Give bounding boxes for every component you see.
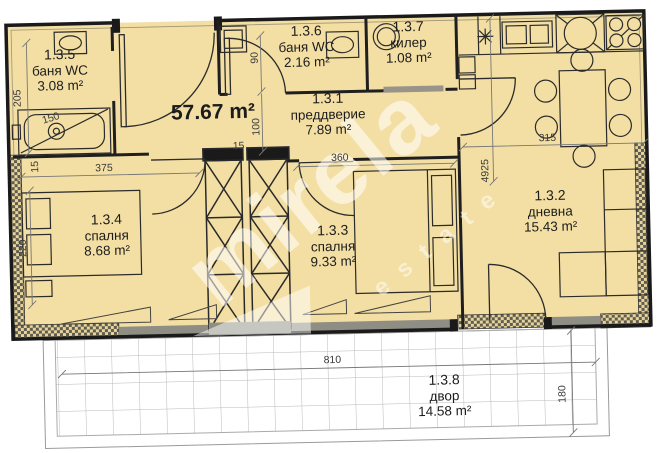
dim-bedroom4-width: 375 <box>95 162 113 174</box>
room-area: 9.33 m² <box>268 253 398 272</box>
dim-shaft-gap: 15 <box>233 140 245 152</box>
dim-left-small: 15 <box>29 161 41 173</box>
room-area: 7.89 m² <box>263 121 393 140</box>
room-area: 1.08 m² <box>344 49 474 68</box>
dim-living-height: 4925 <box>479 159 492 183</box>
dim-bedroom4-depth: 220 <box>17 239 29 257</box>
dim-bath5-height: 205 <box>11 89 23 107</box>
light-symbol-icon <box>477 28 493 44</box>
dim-yard-width: 810 <box>323 354 341 366</box>
room-label-hall131: 1.3.1 преддверие 7.89 m² <box>263 89 394 140</box>
floor-plan: mirela estate 57.67 m² 1.3.5 баня WC 3.0… <box>0 0 663 453</box>
dim-hall-depth: 100 <box>250 118 262 136</box>
dim-bath6-door: 90 <box>249 52 261 64</box>
room-label-closet137: 1.3.7 килер 1.08 m² <box>343 17 474 68</box>
room-area: 8.68 m² <box>42 242 172 261</box>
room-area: 15.43 m² <box>486 218 616 237</box>
room-label-yard138: 1.3.8 двор 14.58 m² <box>379 370 510 421</box>
room-label-living132: 1.3.2 дневна 15.43 m² <box>485 186 616 237</box>
room-area: 14.58 m² <box>380 402 510 421</box>
floor-plan-page: mirela estate 57.67 m² 1.3.5 баня WC 3.0… <box>0 0 663 453</box>
dim-living-width: 315 <box>539 132 557 144</box>
dim-yard-depth: 180 <box>556 385 568 403</box>
dim-bedroom3-width: 360 <box>331 152 349 164</box>
room-label-bedroom134: 1.3.4 спалня 8.68 m² <box>41 210 172 261</box>
yard-terrace <box>43 328 609 449</box>
room-label-bedroom133: 1.3.3 спалня 9.33 m² <box>268 220 399 271</box>
